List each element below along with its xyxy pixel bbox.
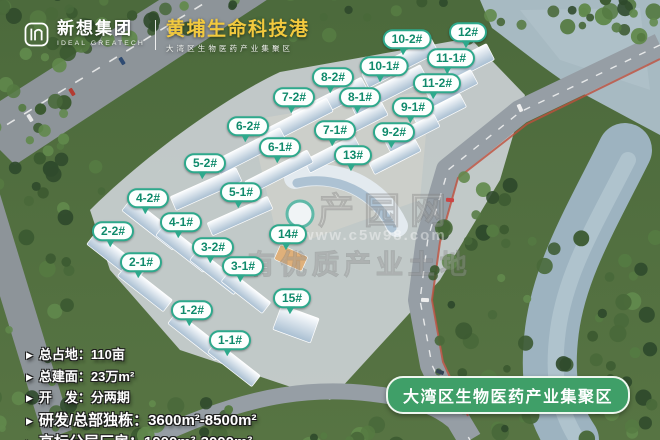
company-name: 新想集团 — [57, 20, 145, 38]
building-label: 9-2# — [373, 122, 415, 142]
stat-item: ▶研发/总部独栋：3600m²-8500m² — [26, 409, 257, 430]
company-logo-icon — [24, 22, 49, 47]
building-label: 5-2# — [184, 153, 226, 173]
building-label: 6-2# — [227, 116, 269, 136]
header-divider — [155, 20, 156, 50]
header: 新想集团 IDEAL GREATECH 黄埔生命科技港 大湾区生物医药产业集聚区 — [24, 20, 309, 54]
stat-text: 开 发：分两期 — [39, 387, 130, 406]
stat-text: 高标分层厂房：1000m²-3000m² — [39, 431, 252, 440]
stat-item: ▶开 发：分两期 — [26, 387, 257, 406]
building-label: 1-2# — [171, 300, 213, 320]
building-label: 4-1# — [160, 212, 202, 232]
arrow-bullet-icon: ▶ — [26, 350, 33, 361]
building-label: 9-1# — [392, 97, 434, 117]
building-label: 10-1# — [360, 56, 409, 76]
stat-text: 总占地：110亩 — [39, 344, 125, 363]
building-label: 7-1# — [314, 120, 356, 140]
building-label: 8-1# — [339, 87, 381, 107]
project-block: 黄埔生命科技港 大湾区生物医药产业集聚区 — [166, 20, 310, 54]
stat-text: 总建面：23万m² — [39, 366, 134, 385]
arrow-bullet-icon: ▶ — [26, 416, 33, 427]
building-label: 13# — [334, 145, 372, 165]
company-name-en: IDEAL GREATECH — [57, 40, 145, 47]
project-title: 黄埔生命科技港 — [166, 20, 310, 39]
building-label: 6-1# — [259, 137, 301, 157]
stats-list: ▶总占地：110亩▶总建面：23万m²▶开 发：分两期▶研发/总部独栋：3600… — [26, 344, 257, 440]
building-label: 5-1# — [220, 182, 262, 202]
building-label: 12# — [449, 22, 487, 42]
arrow-bullet-icon: ▶ — [26, 393, 33, 404]
building-label: 8-2# — [312, 67, 354, 87]
building-label: 10-2# — [383, 29, 432, 49]
building-label: 11-2# — [413, 73, 461, 93]
stat-text: 研发/总部独栋：3600m²-8500m² — [39, 409, 257, 430]
building-label: 2-1# — [120, 252, 162, 272]
arrow-bullet-icon: ▶ — [26, 372, 33, 383]
stat-item: ▶总占地：110亩 — [26, 344, 257, 363]
building-label: 2-2# — [92, 221, 134, 241]
building-label: 14# — [269, 224, 307, 244]
stat-item: ▶高标分层厂房：1000m²-3000m² — [26, 431, 257, 440]
building-label: 3-2# — [192, 237, 234, 257]
stat-item: ▶总建面：23万m² — [26, 366, 257, 385]
building-label: 11-1# — [427, 48, 475, 68]
building-label: 7-2# — [273, 87, 315, 107]
banner-pill: 大湾区生物医药产业集聚区 — [386, 376, 630, 414]
building-label: 3-1# — [222, 256, 264, 276]
building-label: 4-2# — [127, 188, 169, 208]
company-block: 新想集团 IDEAL GREATECH — [57, 20, 145, 47]
project-subtitle: 大湾区生物医药产业集聚区 — [166, 43, 310, 54]
poster-canvas: 产园网 www.c5w98.com 有优质产业土地 10-2#12#11-1#1… — [0, 0, 660, 440]
building-label: 15# — [273, 288, 311, 308]
